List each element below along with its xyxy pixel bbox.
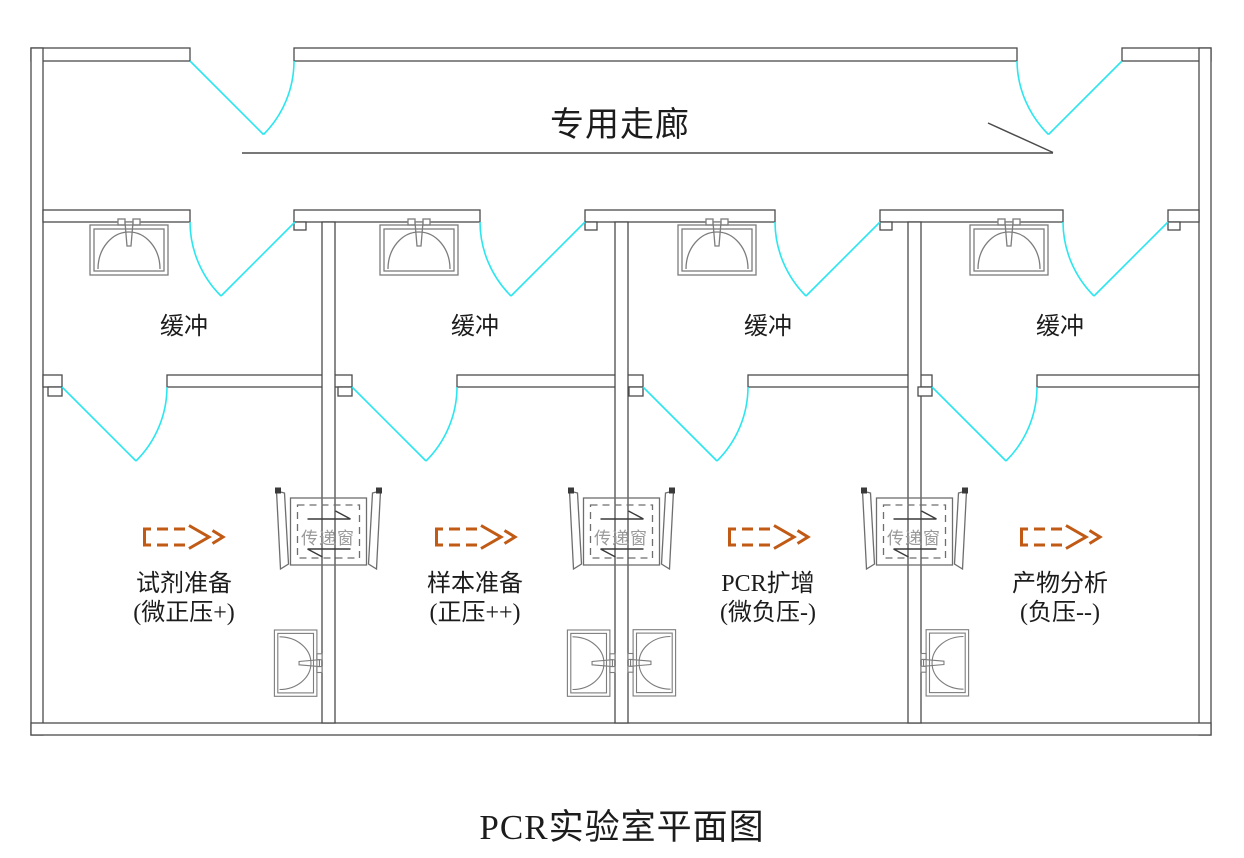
door-room-2-icon bbox=[352, 387, 457, 461]
walls bbox=[31, 48, 1211, 735]
floor-plan-page: 专用走廊 缓冲 缓冲 缓冲 缓冲 传递窗 传递窗 传递窗 试剂准备 (微正压+)… bbox=[0, 0, 1244, 858]
door-room-3-icon bbox=[643, 387, 748, 461]
airflow-arrow-icon bbox=[730, 526, 809, 549]
pass-window-label: 传递窗 bbox=[301, 524, 355, 549]
door-corridor-left-icon bbox=[190, 61, 294, 135]
door-buffer-4-icon bbox=[1063, 222, 1168, 296]
room-2-label: 样本准备 (正压++) bbox=[427, 570, 523, 628]
sink-icon bbox=[628, 630, 676, 696]
sink-icon bbox=[380, 219, 458, 275]
airflow-arrow-icon bbox=[437, 526, 516, 549]
floorplan-title: PCR实验室平面图 bbox=[479, 799, 764, 850]
buffer-2-label: 缓冲 bbox=[451, 306, 499, 341]
door-corridor-right-icon bbox=[1017, 61, 1122, 135]
room-3-name: PCR扩增 bbox=[720, 570, 816, 599]
room-1-pressure: (微正压+) bbox=[133, 599, 235, 628]
buffer-3-label: 缓冲 bbox=[744, 306, 792, 341]
corridor-label: 专用走廊 bbox=[550, 97, 690, 146]
room-2-pressure: (正压++) bbox=[427, 599, 523, 628]
room-1-label: 试剂准备 (微正压+) bbox=[133, 570, 235, 628]
airflow-arrow-icon bbox=[145, 526, 224, 549]
door-buffer-2-icon bbox=[480, 222, 585, 296]
room-4-pressure: (负压--) bbox=[1012, 599, 1108, 628]
door-room-1-icon bbox=[62, 387, 167, 461]
sink-icon bbox=[970, 219, 1048, 275]
room-1-name: 试剂准备 bbox=[133, 570, 235, 599]
door-buffer-3-icon bbox=[775, 222, 880, 296]
airflow-arrow-icon bbox=[1022, 526, 1101, 549]
sink-icon bbox=[678, 219, 756, 275]
buffer-1-label: 缓冲 bbox=[160, 306, 208, 341]
room-3-label: PCR扩增 (微负压-) bbox=[720, 570, 816, 628]
sink-icon bbox=[274, 630, 322, 696]
room-4-label: 产物分析 (负压--) bbox=[1012, 570, 1108, 628]
pass-window-label: 传递窗 bbox=[594, 524, 648, 549]
sink-icon bbox=[921, 630, 969, 696]
room-4-name: 产物分析 bbox=[1012, 570, 1108, 599]
room-3-pressure: (微负压-) bbox=[720, 599, 816, 628]
sink-icon bbox=[567, 630, 615, 696]
sink-icon bbox=[90, 219, 168, 275]
door-room-4-icon bbox=[932, 387, 1037, 461]
pass-window-label: 传递窗 bbox=[887, 524, 941, 549]
buffer-4-label: 缓冲 bbox=[1036, 306, 1084, 341]
door-buffer-1-icon bbox=[190, 222, 295, 296]
room-2-name: 样本准备 bbox=[427, 570, 523, 599]
